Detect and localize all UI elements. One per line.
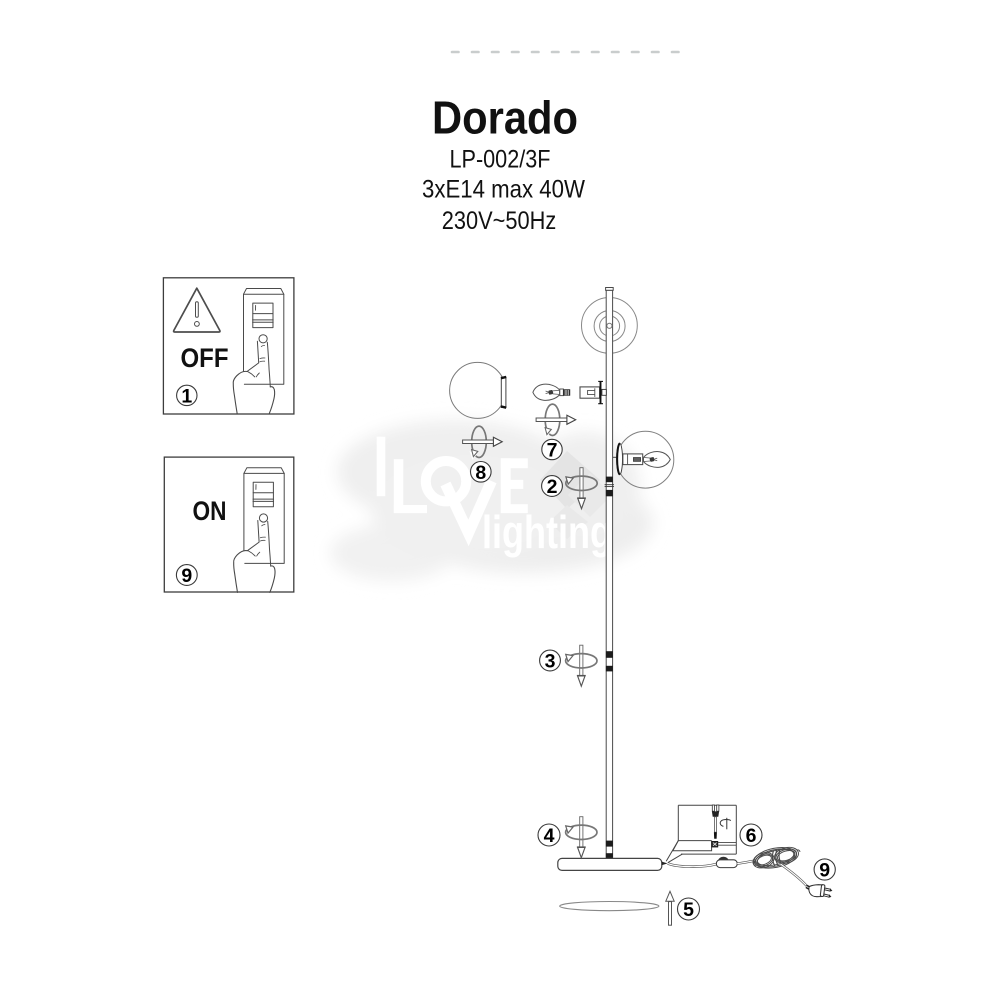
svg-text:ON: ON	[193, 496, 227, 526]
svg-text:4: 4	[544, 825, 555, 847]
svg-text:6: 6	[746, 825, 757, 847]
svg-text:LP-002/3F: LP-002/3F	[450, 146, 551, 174]
svg-text:OFF: OFF	[181, 343, 229, 373]
svg-text:3xE14 max 40W: 3xE14 max 40W	[422, 175, 585, 203]
svg-text:7: 7	[547, 440, 558, 462]
svg-text:2: 2	[547, 476, 558, 498]
svg-text:Dorado: Dorado	[432, 92, 578, 144]
svg-text:230V~50Hz: 230V~50Hz	[442, 207, 557, 235]
svg-text:lighting: lighting	[482, 506, 612, 558]
svg-text:9: 9	[819, 860, 830, 882]
svg-text:5: 5	[683, 899, 694, 921]
svg-text:9: 9	[181, 565, 192, 587]
svg-text:3: 3	[545, 651, 556, 673]
svg-text:8: 8	[475, 462, 486, 484]
svg-text:1: 1	[181, 385, 192, 407]
